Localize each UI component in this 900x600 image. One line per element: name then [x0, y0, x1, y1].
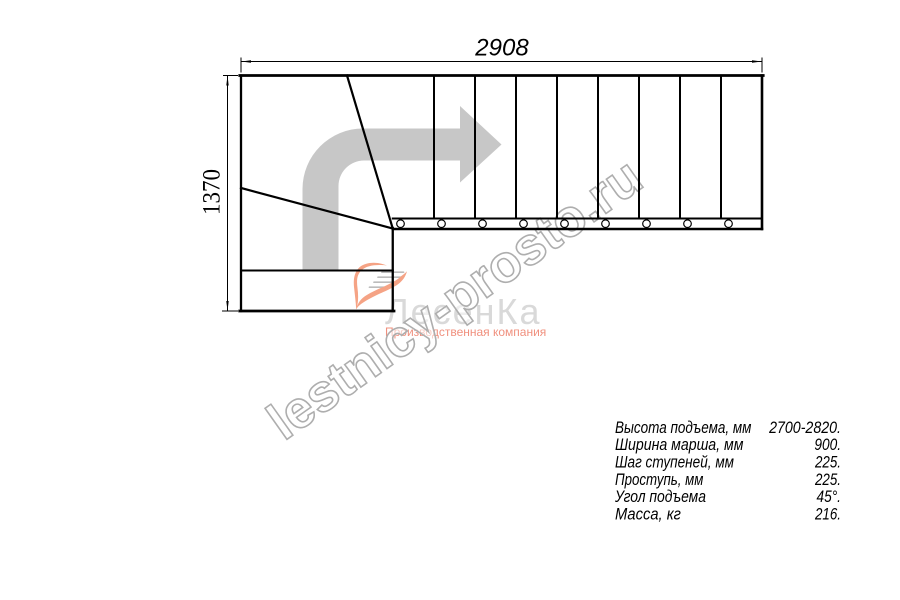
svg-text:Высота подъема, мм: Высота подъема, мм — [615, 419, 752, 438]
svg-text:900.: 900. — [814, 436, 841, 454]
svg-text:Угол подъема: Угол подъема — [614, 488, 706, 506]
svg-text:2700-2820.: 2700-2820. — [768, 419, 841, 437]
svg-text:2908: 2908 — [474, 35, 529, 62]
svg-text:Масса, кг: Масса, кг — [615, 506, 681, 524]
svg-text:Шаг ступеней, мм: Шаг ступеней, мм — [615, 453, 735, 472]
svg-text:225.: 225. — [814, 453, 841, 472]
svg-text:1370: 1370 — [199, 169, 226, 215]
svg-text:45°.: 45°. — [816, 488, 841, 506]
svg-text:225.: 225. — [814, 471, 841, 490]
svg-text:Ширина марша, мм: Ширина марша, мм — [615, 436, 744, 454]
svg-text:Проступь, мм: Проступь, мм — [615, 470, 703, 489]
svg-text:216.: 216. — [814, 505, 841, 524]
